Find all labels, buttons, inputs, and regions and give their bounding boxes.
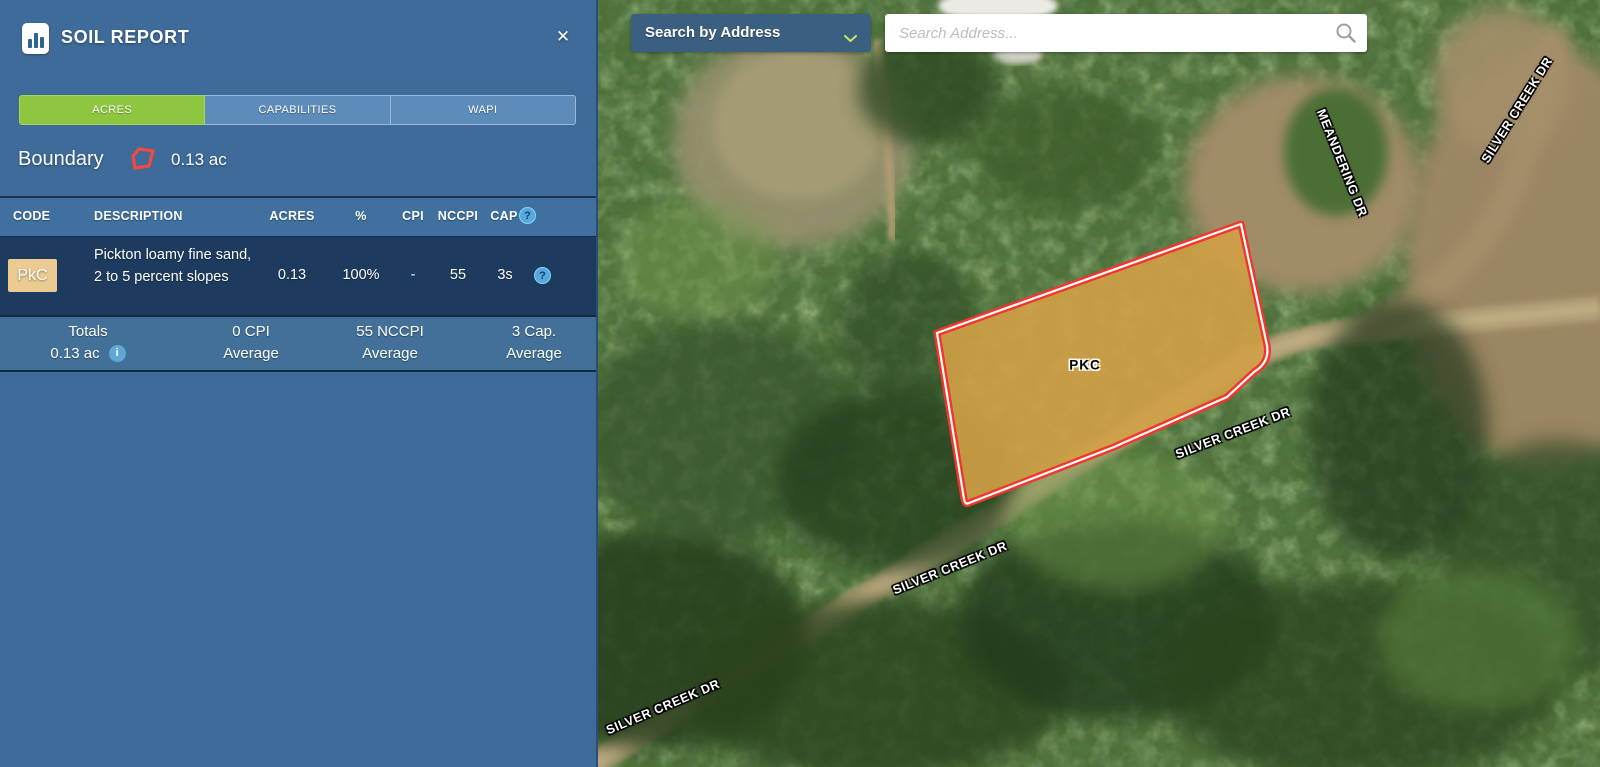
tab-capabilities[interactable]: CAPABILITIES xyxy=(205,95,390,125)
col-header-cap: CAP xyxy=(487,209,521,223)
col-header-description: DESCRIPTION xyxy=(94,209,183,223)
boundary-row: Boundary 0.13 ac xyxy=(0,142,596,186)
cap-help-icon[interactable]: ? xyxy=(519,207,536,224)
totals-cpi-value: 0 CPI xyxy=(178,323,324,340)
row-help-icon[interactable]: ? xyxy=(534,267,551,284)
close-icon[interactable]: ✕ xyxy=(548,22,578,52)
cell-nccpi: 55 xyxy=(428,267,488,283)
boundary-area-value: 0.13 ac xyxy=(171,150,227,170)
cell-acres: 0.13 xyxy=(263,267,321,283)
bar-chart-icon xyxy=(22,23,49,54)
totals-nccpi-col: 55 NCCPI Average xyxy=(328,317,452,370)
soil-report-panel: SOIL REPORT ✕ ACRES CAPABILITIES WAPI Bo… xyxy=(0,0,598,767)
totals-cap-col: 3 Cap. Average xyxy=(460,317,608,370)
totals-area-col: Totals 0.13 ac i xyxy=(4,317,172,370)
cell-cap: 3s xyxy=(483,267,527,283)
soil-description: Pickton loamy fine sand, 2 to 5 percent … xyxy=(94,244,256,288)
col-header-nccpi: NCCPI xyxy=(428,209,488,223)
panel-header: SOIL REPORT ✕ xyxy=(0,0,596,70)
totals-cap-value: 3 Cap. xyxy=(460,323,608,340)
totals-nccpi-value: 55 NCCPI xyxy=(328,323,452,340)
parcel-polygon[interactable] xyxy=(598,0,1600,767)
cell-percent: 100% xyxy=(338,267,384,283)
boundary-polygon-icon xyxy=(129,146,157,177)
satellite-map[interactable]: PKC SILVER CREEK DR MEANDERING DR SILVER… xyxy=(598,0,1600,767)
page-title: SOIL REPORT xyxy=(61,27,189,48)
totals-row: Totals 0.13 ac i 0 CPI Average 55 NCCPI … xyxy=(0,315,596,372)
boundary-label: Boundary xyxy=(18,148,104,171)
col-header-percent: % xyxy=(338,209,384,223)
parcel-soil-label: PKC xyxy=(1069,358,1101,373)
col-header-acres: ACRES xyxy=(263,209,321,223)
table-header-row: CODE DESCRIPTION ACRES % CPI NCCPI CAP ? xyxy=(0,198,596,236)
chevron-down-icon xyxy=(844,30,857,48)
totals-nccpi-sub: Average xyxy=(328,345,452,362)
totals-cpi-sub: Average xyxy=(178,345,324,362)
search-mode-dropdown[interactable]: Search by Address xyxy=(631,14,871,52)
table-row[interactable]: PkC Pickton loamy fine sand, 2 to 5 perc… xyxy=(0,236,596,315)
tab-bar: ACRES CAPABILITIES WAPI xyxy=(19,95,576,125)
search-mode-label: Search by Address xyxy=(645,14,780,52)
search-input[interactable] xyxy=(885,14,1367,52)
col-header-cpi: CPI xyxy=(393,209,433,223)
soil-code-badge: PkC xyxy=(8,259,57,292)
totals-cap-sub: Average xyxy=(460,345,608,362)
info-icon[interactable]: i xyxy=(109,345,126,362)
cell-cpi: - xyxy=(393,267,433,283)
totals-cpi-col: 0 CPI Average xyxy=(178,317,324,370)
col-header-code: CODE xyxy=(13,209,50,223)
totals-label: Totals xyxy=(4,323,172,340)
tab-acres[interactable]: ACRES xyxy=(19,95,205,125)
tab-wapi[interactable]: WAPI xyxy=(391,95,576,125)
totals-area-value: 0.13 ac xyxy=(50,345,99,362)
